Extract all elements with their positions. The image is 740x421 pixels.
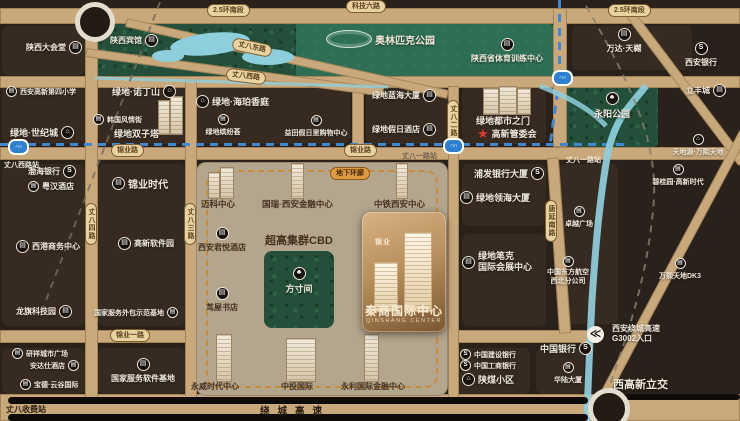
guorui-tower-art [291,163,304,199]
poi-hualu: ▤ 华陆大厦 [546,362,590,385]
house-icon: ⌂ [693,134,704,145]
poi-zhuoyue: ▤ 卓越广场 [554,206,604,229]
poi-holiday-inn: 绿地假日酒店▤ [372,123,436,136]
poi-hyatt: ▤ 西安君悦酒店 [192,227,252,253]
toll-station-label: 丈八收费站 [6,404,46,415]
project-title: 秦商国际中心 [362,302,446,319]
building-icon: ▤ [216,287,229,300]
poi-olympic-park: 奥林匹克公园 [326,30,435,48]
poi-dk3: ▤ 万熙天地DK3 [650,258,710,281]
poi-xigang: ▤西港商务中心 [16,240,80,253]
poi-shaanxi-hotel: 陕西宾馆▤ [110,34,158,47]
poi-jinye-time: ▤锦业时代 [112,176,168,191]
station-label-zb1: 丈八一路站 [402,151,437,161]
project-subtitle: QINSHANG CENTER [362,318,446,324]
project-card: 锦业 秦商国际中心 QINSHANG CENTER [362,212,446,332]
building-icon: ▤ [675,258,686,269]
road-label-jinye1: 锦业一路 [110,329,150,342]
poi-eastern-airlines: ▤ 中国东方航空西北分公司 [540,256,596,287]
poi-cbd-label: 超高集群CBD [265,232,333,248]
location-map: ≪ ∩∩ ∩∩ ∩∩ 丈八西路站 丈八一路站 丈八一路站 2.5环南段 2.5环… [0,0,740,421]
poi-linghai: ▤绿地领海大厦 [460,191,530,204]
yongwei-tower-art [216,334,232,382]
underpass-label: 地下环廊 [330,167,370,180]
road-label-ring25-e: 2.5环南段 [608,4,651,17]
building-icon: ▤ [216,227,229,240]
building-icon: ▤ [462,256,475,269]
building-icon: ▤ [112,177,125,190]
poi-gaoxin-interchange: 西高新立交 [613,376,668,392]
block [462,234,546,326]
metro-station-icon: ∩∩ [552,70,573,86]
road-label-jinye-e: 锦业路 [344,144,377,157]
road-label-zb2: 丈八二路 [447,100,459,142]
poi-baode: ▤宝德·云谷国际 [20,379,78,390]
poi-yongli: 永利国际金融中心 [341,381,405,392]
metro-station-icon: ∩∩ [8,139,29,155]
poi-century-city: 绿地·世纪城⌂ [10,126,74,139]
building-icon: ▤ [673,164,684,175]
project-tower-art [404,232,432,312]
interchange-icon [588,388,630,421]
house-icon: ⌂ [163,85,176,98]
poi-zhongtie: 中铁西安中心 [374,198,425,210]
poi-softbase: ▤ 国家服务软件基地 [101,358,185,384]
poi-shanmei: ⌂陕煤小区 [462,373,514,386]
poi-waibao: 国家服务外包示范基地▤ [94,307,178,318]
station-label-zb1b: 丈八一路站 [566,155,601,165]
poi-shaanxi-hall: 陕西大会堂▤ [26,41,82,54]
poi-nottinghill: 绿地·诺丁山⌂ [112,85,176,98]
building-icon: ▤ [118,237,131,250]
poi-yongyang-park: ♣ 永阳公园 [582,92,642,120]
poi-haipo: ⌂绿地·海珀香庭 [196,95,269,108]
bank-icon: S [460,360,471,371]
road-label-jinye-w: 锦业路 [111,144,144,157]
poi-twin-towers: 绿地双子塔 [114,127,159,140]
building-icon: ▤ [93,114,104,125]
stadium-icon [326,30,372,48]
bank-icon: S [695,42,708,55]
poi-zhongtou: 中投国际 [281,381,313,392]
stadium-icon: ▤ [501,38,514,51]
bank-icon: S [63,165,76,178]
poi-guorui: 国瑞·西安金融中心 [262,198,333,210]
poi-longqi: 龙旗科技园▤ [16,305,72,318]
poi-ccb: S中国建设银行 [460,349,516,360]
project-logo: 锦业 [374,236,392,248]
building-icon: ▤ [218,114,229,125]
building-icon: ▤ [59,305,72,318]
poi-andashi: 安达仕酒店▤ [30,360,79,371]
building-icon: ▤ [145,34,158,47]
poi-bgy: ▤ 碧桂园·高新时代 [642,164,714,187]
metro-station-icon: ∩∩ [443,138,464,154]
poi-yuehan-hotel: ▤粤汉酒店 [28,181,74,192]
tree-icon: ♣ [293,267,306,280]
tree-icon: ♣ [606,92,619,105]
station-label-zbx: 丈八西路站 [4,160,39,170]
poi-maike: 迈科中心 [201,198,235,210]
poi-gaoxin-soft: ▤高新软件园 [118,237,174,250]
poi-g3002: 西安绕城高速G3002入口 [612,324,660,344]
poi-wanda: ▤ 万达·天樾 [596,28,652,54]
metro-line-vertical [558,0,561,74]
building-icon: ▤ [137,358,150,371]
building-icon: ▤ [574,206,585,217]
bank-icon: S [579,342,592,355]
building-icon: ▤ [563,362,574,373]
house-icon: ⌂ [462,373,475,386]
toll-gate-icon: ≪ [587,326,604,343]
poi-binfen: ▤ 绿地缤纷荟 [200,114,246,137]
bank-icon: S [460,349,471,360]
poi-lanhai: 绿地蓝海大厦▤ [372,89,436,102]
poi-admin: ★高新管委会 [477,127,537,140]
twin-tower-art [158,100,170,135]
building-icon: ▤ [20,379,31,390]
poi-niaowu: ▤ 茑屋书店 [192,287,252,313]
poi-pufa: 浦发银行大厦S [474,167,544,180]
maike-tower-art [208,172,220,199]
building-icon: ▤ [16,240,29,253]
poi-yitian: ▤ 益田假日里购物中心 [278,115,354,138]
poi-sport-center: ▤ 陕西省体育训练中心 [461,38,553,64]
building-icon: ▤ [618,28,631,41]
poi-yongwei: 永威时代中心 [191,381,239,392]
house-icon: ⌂ [196,95,209,108]
building-icon: ▤ [28,181,39,192]
doorcity-tower-art [499,86,517,115]
building-icon: ▤ [69,41,82,54]
road-label-keji6: 科技六路 [346,0,386,13]
school-icon: ▤ [6,86,17,97]
building-icon: ▤ [311,115,322,126]
doorcity-tower-art [483,88,499,115]
poi-lifeng: 立丰城▤ [686,84,726,97]
maike-tower-art [220,167,234,199]
metro-line-jinye [0,143,625,146]
yongli-tower-art [364,334,379,382]
building-icon: ▤ [423,89,436,102]
poi-tiandiyuan: ⌂ 天地源·万熙天地 [668,134,728,157]
building-icon: ▤ [68,360,79,371]
bank-icon: S [531,167,544,180]
building-icon: ▤ [167,307,178,318]
poi-fangcunjian: ♣ 方寸间 [269,267,329,295]
building-icon: ▤ [423,123,436,136]
zhongtie-tower-art [396,163,408,199]
raocheng-label: 绕城高速 [260,403,330,417]
poi-boc: 中国银行S [540,342,592,355]
building-icon: ▤ [12,348,23,359]
zhongtou-tower-art [286,338,316,382]
poi-bike-expo: ▤ 绿地笔克国际会展中心 [462,251,532,274]
building-icon: ▤ [713,84,726,97]
doorcity-tower-art [517,88,531,115]
raocheng-band-east [622,394,740,400]
poi-korea-street: ▤韩国风情街 [93,114,142,125]
road-label-ring25-w: 2.5环南段 [207,4,250,17]
building-icon: ▤ [460,191,473,204]
twin-tower-art [170,96,183,135]
poi-icbc: S中国工商银行 [460,360,516,371]
poi-gx4-school: ▤西安高新第四小学 [6,86,76,97]
poi-yanxiang: ▤研祥城市广场 [12,348,68,359]
road-label-zb4: 丈八四路 [85,203,97,245]
house-icon: ⌂ [61,126,74,139]
interchange-icon [75,2,115,42]
road-jinye1-west [0,330,197,343]
building-icon: ▤ [563,256,574,267]
poi-xian-bank: S 西安银行 [676,42,726,68]
star-icon: ★ [477,129,489,139]
